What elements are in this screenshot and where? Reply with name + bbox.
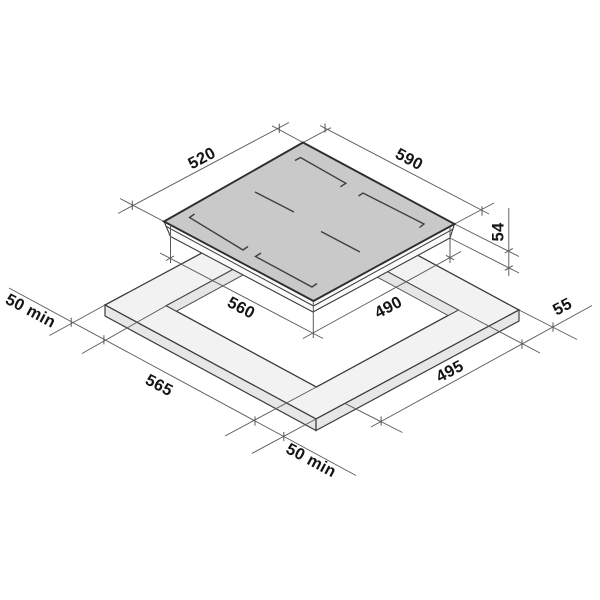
svg-text:54: 54 bbox=[490, 222, 508, 241]
